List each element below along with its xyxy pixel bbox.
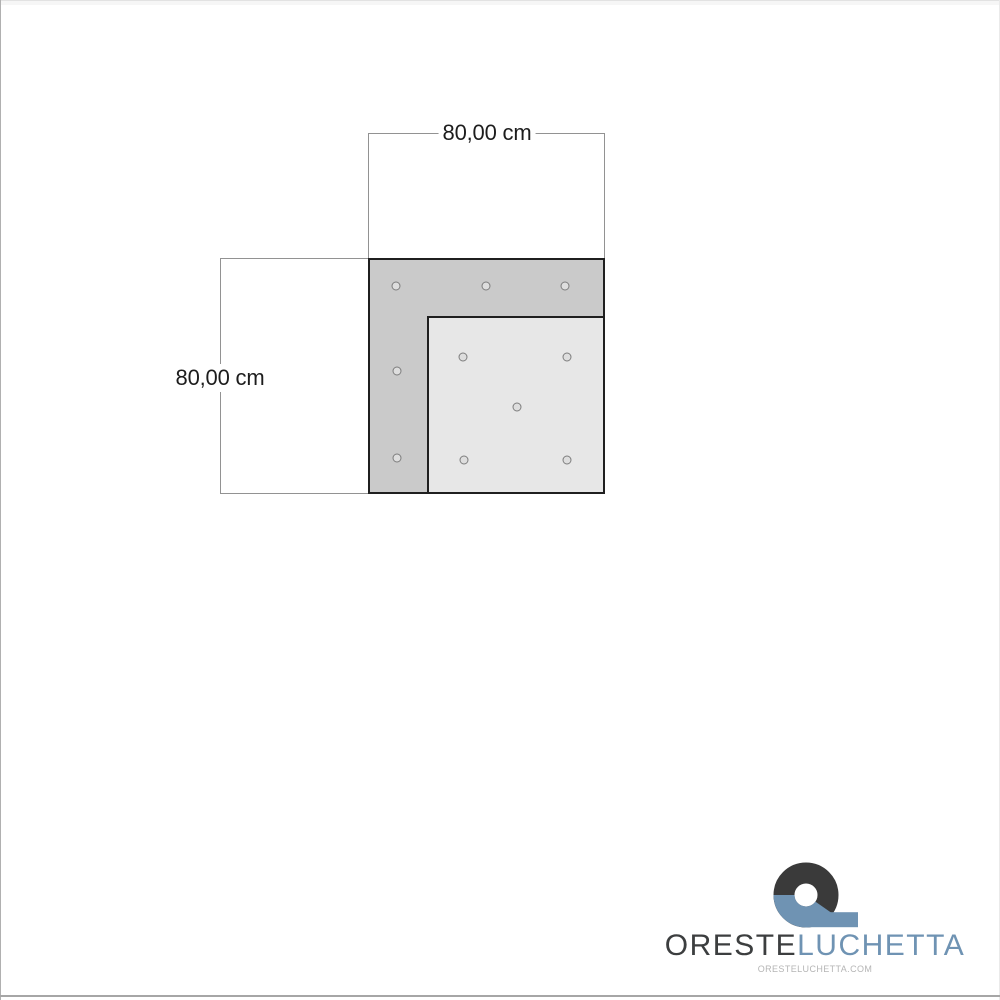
q-ribbon-icon <box>765 855 870 940</box>
page-frame-left <box>0 0 1 1000</box>
hole-marker <box>513 403 522 412</box>
brand-wordmark: ORESTELUCHETTA <box>665 931 965 961</box>
width-extension-line-right <box>604 133 605 259</box>
brand-website: ORESTELUCHETTA.COM <box>758 964 873 974</box>
hole-marker <box>563 456 572 465</box>
hole-marker <box>561 282 570 291</box>
page-frame-top <box>0 0 1000 5</box>
brand-name-primary: ORESTE <box>665 929 797 962</box>
width-extension-line-left <box>368 133 369 259</box>
hole-marker <box>482 282 491 291</box>
height-extension-line-top <box>220 258 368 259</box>
brand-name-secondary: LUCHETTA <box>797 929 965 962</box>
height-dimension-label: 80,00 cm <box>172 364 269 392</box>
hole-marker <box>460 456 469 465</box>
hole-marker <box>459 353 468 362</box>
width-dimension-label: 80,00 cm <box>439 119 536 147</box>
hole-marker <box>563 353 572 362</box>
hole-marker <box>392 282 401 291</box>
hole-marker <box>393 454 402 463</box>
height-extension-line-bottom <box>220 493 368 494</box>
hole-marker <box>393 367 402 376</box>
page-frame-bottom <box>0 995 1000 997</box>
